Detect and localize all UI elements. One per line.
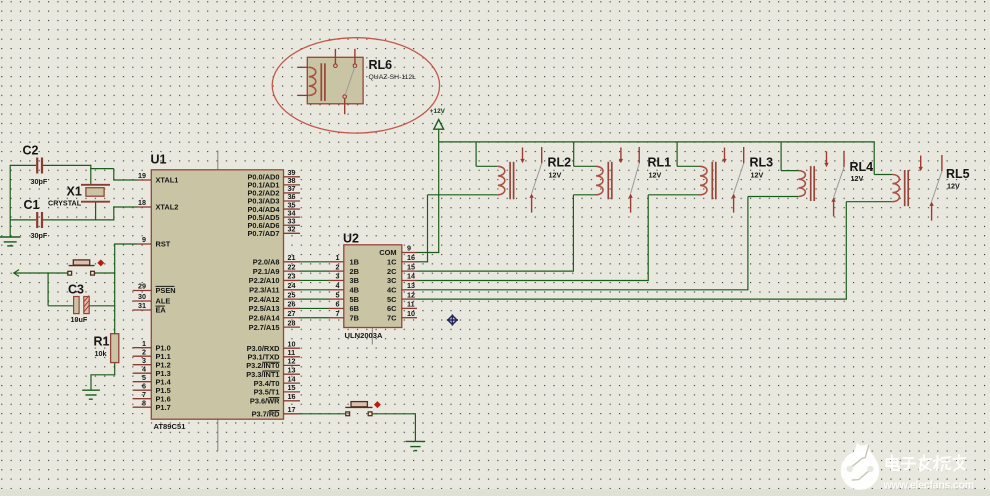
svg-text:+12V: +12V bbox=[430, 108, 446, 115]
svg-text:RST: RST bbox=[156, 240, 171, 249]
svg-text:22: 22 bbox=[288, 262, 296, 271]
svg-text:12V: 12V bbox=[751, 170, 764, 179]
svg-text:P2.6/A14: P2.6/A14 bbox=[249, 313, 281, 322]
svg-text:10: 10 bbox=[407, 309, 415, 318]
svg-text:6: 6 bbox=[336, 300, 340, 309]
svg-text:P3.5/T1: P3.5/T1 bbox=[254, 388, 280, 397]
svg-text:15: 15 bbox=[288, 383, 296, 392]
svg-text:14: 14 bbox=[288, 374, 296, 383]
svg-text:10k: 10k bbox=[95, 349, 107, 358]
svg-text:8: 8 bbox=[142, 398, 146, 407]
svg-text:7C: 7C bbox=[387, 313, 397, 322]
svg-text:P2.7/A15: P2.7/A15 bbox=[249, 323, 280, 332]
svg-text:EA: EA bbox=[156, 306, 167, 315]
svg-text:P2.1/A9: P2.1/A9 bbox=[253, 267, 280, 276]
svg-text:30pF: 30pF bbox=[31, 231, 48, 240]
svg-text:16: 16 bbox=[288, 392, 296, 401]
svg-text:RL2: RL2 bbox=[548, 155, 572, 169]
svg-text:C3: C3 bbox=[68, 283, 84, 297]
svg-text:P1.7: P1.7 bbox=[156, 403, 171, 412]
svg-text:5B: 5B bbox=[350, 295, 359, 304]
svg-text:CRYSTAL: CRYSTAL bbox=[48, 199, 82, 208]
svg-text:2: 2 bbox=[336, 262, 340, 271]
svg-text:7: 7 bbox=[336, 309, 340, 318]
svg-text:www.elecfans.com: www.elecfans.com bbox=[883, 480, 974, 492]
svg-text:PSEN: PSEN bbox=[156, 286, 176, 295]
svg-text:RL1: RL1 bbox=[648, 155, 672, 169]
svg-text:4C: 4C bbox=[387, 286, 397, 295]
svg-text:RL3: RL3 bbox=[750, 155, 774, 169]
svg-text:15: 15 bbox=[407, 262, 415, 271]
svg-text:P3.4/T0: P3.4/T0 bbox=[254, 379, 280, 388]
svg-text:XTAL1: XTAL1 bbox=[156, 176, 179, 185]
svg-text:16: 16 bbox=[407, 253, 415, 262]
svg-text:AT89C51: AT89C51 bbox=[154, 422, 187, 431]
svg-text:27: 27 bbox=[288, 309, 296, 318]
svg-text:17: 17 bbox=[288, 405, 296, 414]
svg-text:P2.5/A13: P2.5/A13 bbox=[249, 304, 280, 313]
svg-text:2B: 2B bbox=[350, 267, 359, 276]
svg-text:23: 23 bbox=[288, 272, 296, 281]
svg-text:2C: 2C bbox=[387, 267, 397, 276]
svg-text:9: 9 bbox=[407, 244, 411, 253]
svg-text:RL5: RL5 bbox=[946, 167, 970, 181]
svg-text:RL4: RL4 bbox=[850, 160, 874, 174]
svg-text:18: 18 bbox=[138, 198, 146, 207]
svg-text:7B: 7B bbox=[350, 313, 359, 322]
svg-text:QUAZ-SH-112L: QUAZ-SH-112L bbox=[369, 74, 417, 81]
svg-text:6B: 6B bbox=[350, 304, 359, 313]
svg-text:1C: 1C bbox=[387, 258, 397, 267]
svg-text:6C: 6C bbox=[387, 304, 397, 313]
svg-text:P0.7/AD7: P0.7/AD7 bbox=[247, 229, 279, 238]
svg-text:10uF: 10uF bbox=[71, 315, 88, 324]
svg-text:XTAL2: XTAL2 bbox=[156, 203, 179, 212]
svg-text:P2.0/A8: P2.0/A8 bbox=[253, 258, 280, 267]
svg-text:ULN2003A: ULN2003A bbox=[345, 331, 383, 340]
svg-text:C1: C1 bbox=[24, 198, 40, 212]
svg-text:12V: 12V bbox=[549, 170, 562, 179]
svg-text:26: 26 bbox=[288, 300, 296, 309]
svg-text:3B: 3B bbox=[350, 276, 359, 285]
svg-text:9: 9 bbox=[142, 235, 146, 244]
svg-text:19: 19 bbox=[138, 171, 146, 180]
svg-text:21: 21 bbox=[288, 253, 296, 262]
svg-text:RL6: RL6 bbox=[369, 58, 393, 72]
svg-text:3C: 3C bbox=[387, 276, 397, 285]
svg-text:1B: 1B bbox=[350, 258, 359, 267]
svg-text:31: 31 bbox=[138, 301, 146, 310]
svg-text:30: 30 bbox=[138, 292, 146, 301]
svg-text:3: 3 bbox=[336, 272, 340, 281]
svg-text:X1: X1 bbox=[67, 185, 82, 199]
svg-text:12V: 12V bbox=[947, 182, 960, 191]
svg-text:4B: 4B bbox=[350, 285, 359, 294]
svg-text:14: 14 bbox=[407, 272, 415, 281]
svg-text:P2.4/A12: P2.4/A12 bbox=[249, 295, 280, 304]
svg-text:P2.3/A11: P2.3/A11 bbox=[249, 285, 279, 294]
svg-text:U2: U2 bbox=[343, 232, 359, 246]
svg-text:1: 1 bbox=[336, 253, 340, 262]
svg-text:28: 28 bbox=[288, 318, 296, 327]
svg-text:29: 29 bbox=[138, 282, 146, 291]
svg-text:5: 5 bbox=[336, 290, 340, 299]
svg-text:4: 4 bbox=[336, 281, 340, 290]
svg-text:24: 24 bbox=[288, 281, 296, 290]
svg-text:13: 13 bbox=[288, 365, 296, 374]
svg-text:P2.2/A10: P2.2/A10 bbox=[249, 276, 280, 285]
svg-text:25: 25 bbox=[288, 290, 296, 299]
svg-text:30pF: 30pF bbox=[31, 177, 48, 186]
svg-text:12V: 12V bbox=[851, 174, 864, 183]
svg-text:13: 13 bbox=[407, 281, 415, 290]
svg-text:U1: U1 bbox=[151, 153, 167, 167]
svg-text:ALE: ALE bbox=[156, 297, 171, 306]
svg-text:COM: COM bbox=[379, 248, 396, 257]
svg-text:12: 12 bbox=[407, 290, 415, 299]
svg-text:R1: R1 bbox=[94, 335, 110, 349]
svg-text:11: 11 bbox=[407, 300, 415, 309]
svg-text:C2: C2 bbox=[23, 144, 39, 158]
svg-text:5C: 5C bbox=[387, 295, 397, 304]
svg-text:12: 12 bbox=[288, 357, 296, 366]
svg-text:12V: 12V bbox=[649, 170, 662, 179]
svg-text:32: 32 bbox=[288, 224, 296, 233]
